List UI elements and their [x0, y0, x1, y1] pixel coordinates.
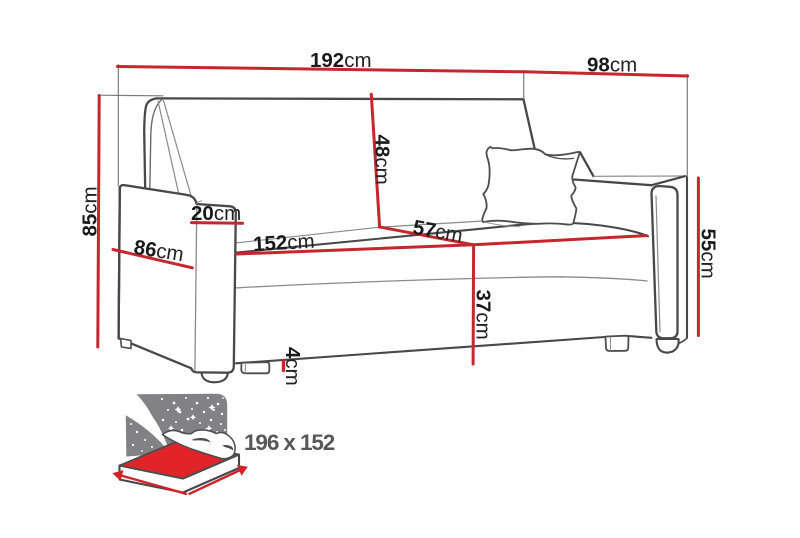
svg-text:152cm: 152cm [253, 230, 316, 256]
svg-text:37cm: 37cm [472, 290, 495, 340]
svg-text:98cm: 98cm [587, 54, 637, 77]
svg-text:196 x 152: 196 x 152 [244, 430, 335, 455]
svg-text:85cm: 85cm [79, 186, 102, 236]
svg-text:48cm: 48cm [371, 135, 394, 185]
svg-text:192cm: 192cm [310, 49, 372, 72]
svg-text:4cm: 4cm [281, 347, 304, 386]
svg-text:55cm: 55cm [697, 229, 720, 279]
svg-text:20cm: 20cm [191, 202, 241, 225]
